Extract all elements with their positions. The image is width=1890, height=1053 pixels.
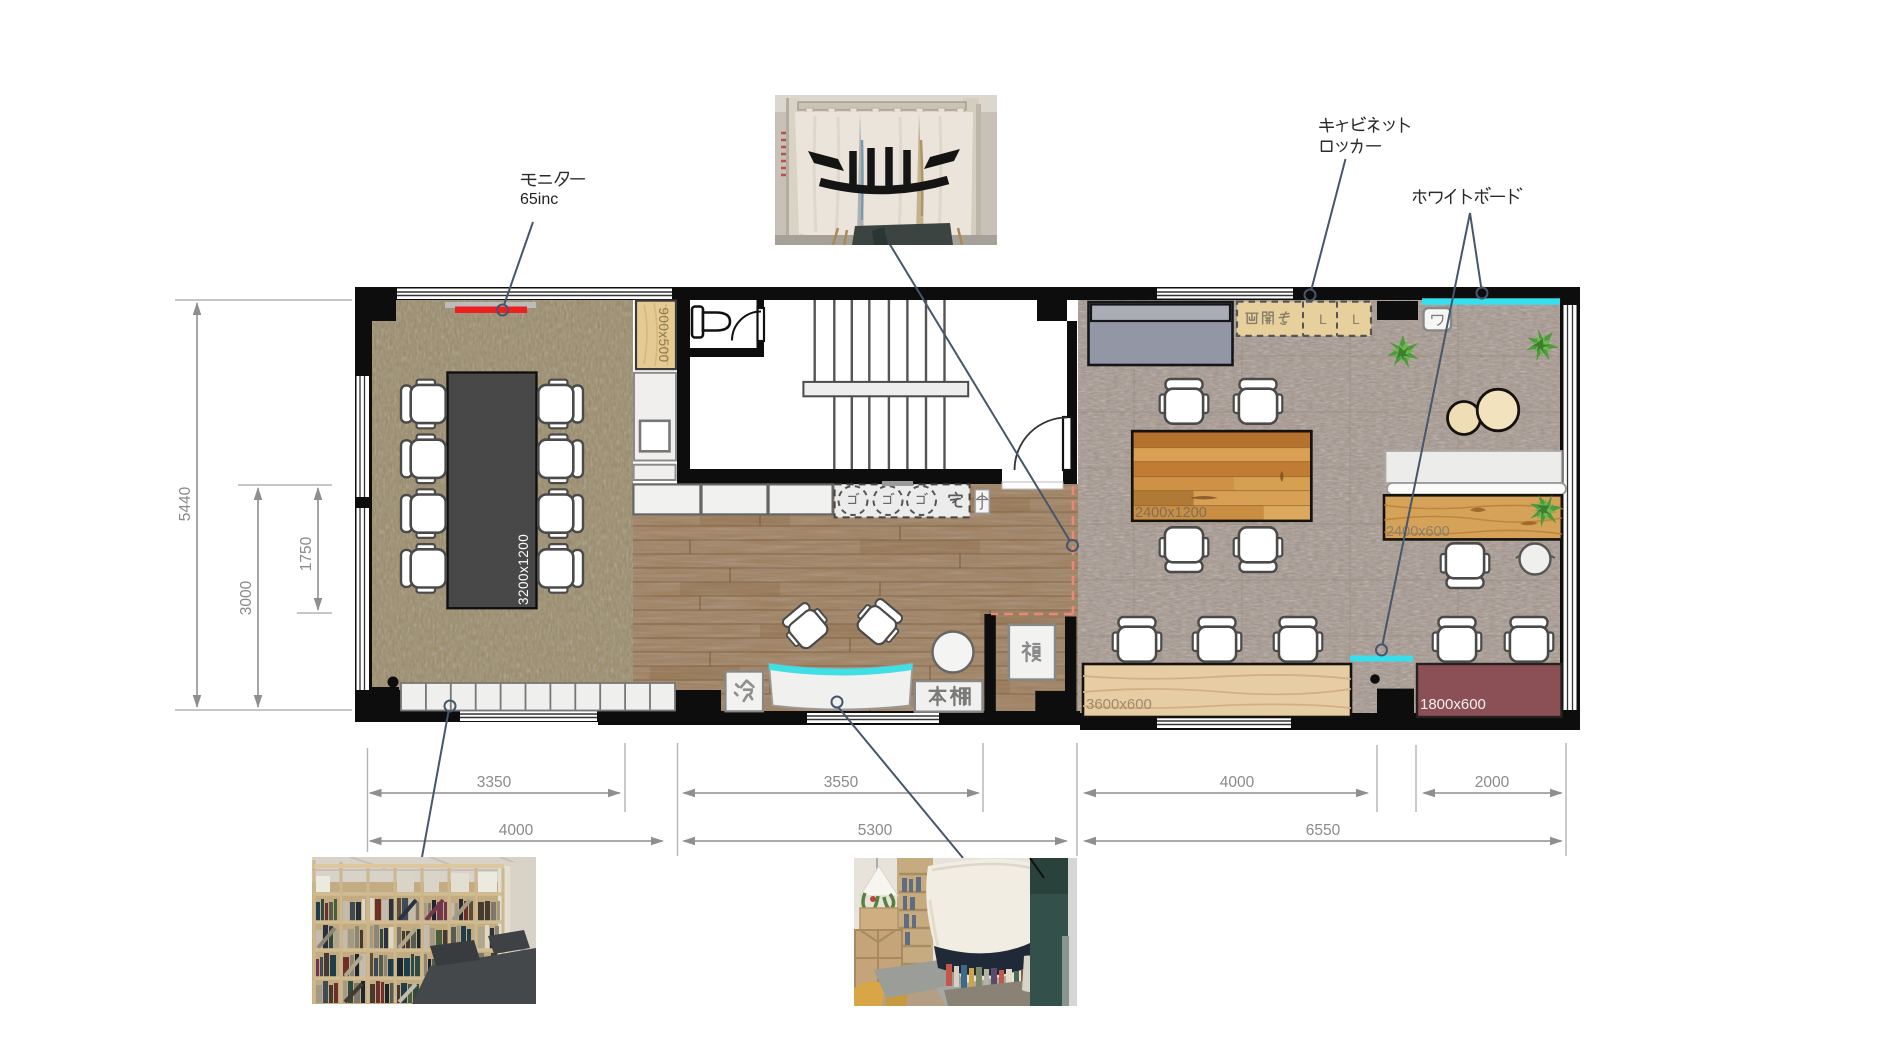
svg-text:4000: 4000 <box>1220 774 1255 791</box>
svg-text:5300: 5300 <box>858 822 893 839</box>
svg-text:3350: 3350 <box>477 774 512 791</box>
svg-text:3550: 3550 <box>824 774 859 791</box>
svg-text:4000: 4000 <box>499 822 534 839</box>
svg-text:2400x600: 2400x600 <box>1386 524 1450 540</box>
svg-text:5440: 5440 <box>177 486 194 521</box>
svg-text:2400x1200: 2400x1200 <box>1135 505 1207 521</box>
svg-text:1750: 1750 <box>298 536 315 571</box>
svg-text:6550: 6550 <box>1306 822 1341 839</box>
svg-text:L: L <box>1319 311 1327 327</box>
svg-text:900x500: 900x500 <box>656 307 671 362</box>
svg-text:3000: 3000 <box>238 580 255 615</box>
svg-text:L: L <box>1352 311 1360 327</box>
svg-text:3200x1200: 3200x1200 <box>516 534 531 605</box>
svg-text:3600x600: 3600x600 <box>1086 696 1152 713</box>
svg-text:2000: 2000 <box>1475 774 1510 791</box>
svg-text:1800x600: 1800x600 <box>1420 696 1486 713</box>
svg-text:65inc: 65inc <box>520 191 558 208</box>
